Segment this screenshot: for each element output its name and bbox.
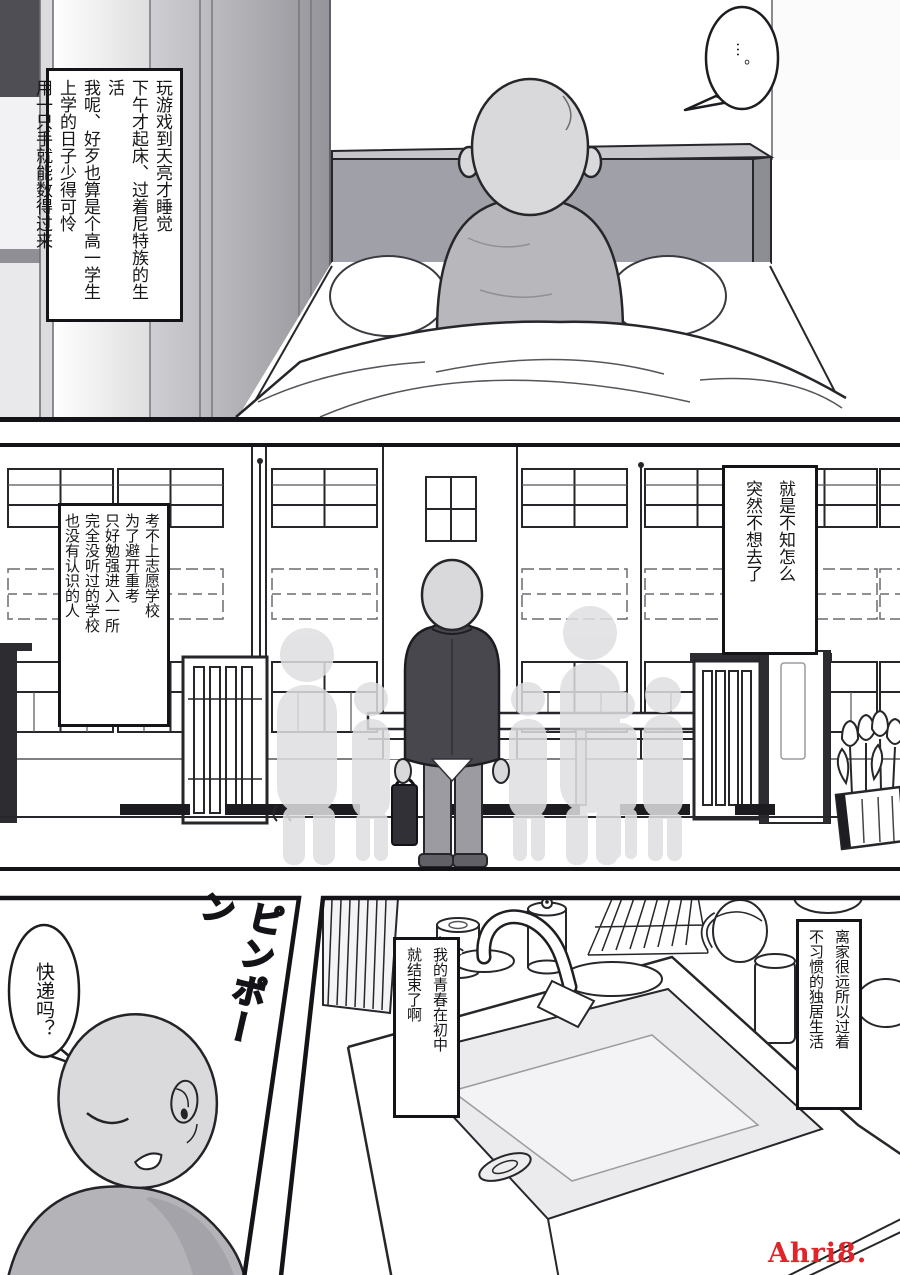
stairwell-window [426,477,476,541]
watermark-text: Ahri8. com [768,1238,900,1275]
wall-corner [772,0,900,160]
speech-bubble-ellipsis-text: …。 [724,28,760,90]
window-bars [323,898,398,1013]
narration-box-youth-ended: 我的青春在初中 就结束了啊 [393,937,460,1118]
manga-page: 玩游戏到天亮才睡觉 下午才起床、过着尼特族的生活 我呢、好歹也算是个高一学生 上… [0,0,900,1275]
speech-bubble-delivery-text: 快递吗？ [27,942,61,1057]
narration-box-exam-failure: 考不上志愿学校 为了避开重考 只好勉强进入一所 完全没听过的学校 也没有认识的人 [58,503,170,727]
disposal-plate [562,962,662,996]
school-gate-right [690,651,832,823]
narration-box-dont-want-to-go: 就是不知怎么 突然不想去了 [722,465,818,655]
narration-box-living-alone: 离家很远所以过着 不习惯的独居生活 [796,919,862,1110]
narration-box-nighttime-gamer: 玩游戏到天亮才睡觉 下午才起床、过着尼特族的生活 我呢、好歹也算是个高一学生 上… [46,68,183,322]
